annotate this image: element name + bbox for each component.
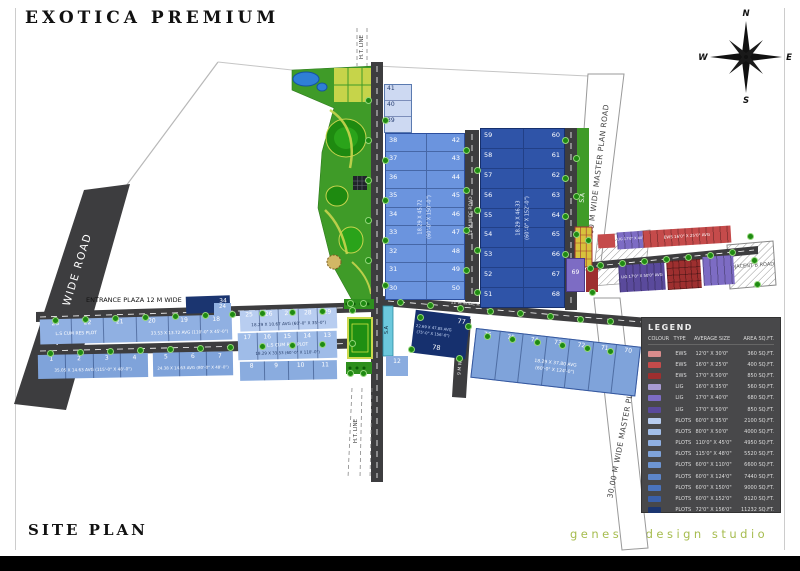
size-metric: 18.29 X 46.33 <box>514 196 523 240</box>
tree-icon <box>573 193 580 200</box>
tree-icon <box>754 281 761 288</box>
plot-grid-row: 5267 <box>481 268 564 288</box>
legend-colour-swatch <box>648 351 661 357</box>
legend-area: 850 SQ.FT. <box>737 373 774 379</box>
plot-number: 44 <box>427 171 464 188</box>
park-lawn <box>326 186 348 206</box>
tree-icon <box>474 247 481 254</box>
legend-row: PLOTS115'0" X 48'0"5520 SQ.FT. <box>648 449 774 460</box>
plot-number: 9 <box>264 361 289 380</box>
legend-type: EWS <box>675 351 695 357</box>
tree-icon <box>456 355 463 362</box>
plot-grid-row: 3644 <box>386 171 464 189</box>
tree-icon <box>289 342 296 349</box>
tree-icon <box>229 311 236 318</box>
tree-icon <box>641 258 648 265</box>
legend-row: EWS17'0" X 50'0"850 SQ.FT. <box>648 370 774 381</box>
plot-grid-row: 5366 <box>481 248 564 268</box>
legend-row: EWS16'0" X 25'0"400 SQ.FT. <box>648 359 774 370</box>
tree-icon <box>365 177 372 184</box>
tree-icon <box>474 207 481 214</box>
legend-type: LIG <box>675 384 695 390</box>
tree-icon <box>142 314 149 321</box>
tree-icon <box>729 249 736 256</box>
plot-number: 32 <box>386 245 427 262</box>
block-77-size-label: 22.69 X 47.85 AVG (75'-0" X 156'-0") <box>414 323 453 339</box>
sa-label-cyan: S.A <box>384 325 390 334</box>
site-boundary <box>375 66 588 76</box>
tree-icon <box>197 345 204 352</box>
tree-icon <box>227 344 234 351</box>
compass-rose: N E S W <box>698 9 792 106</box>
plot-grid-row: 5762 <box>481 169 564 189</box>
legend-colour-swatch <box>648 462 661 468</box>
tree-icon <box>487 308 494 315</box>
legend-average-size: 16'0" X 35'0" <box>695 384 737 390</box>
lig-block-top: LIG 17'0" X 40'0" AVG <box>617 231 644 250</box>
legend-col-size: AVERAGE SIZE <box>694 336 737 342</box>
plot-number: 60 <box>524 129 564 148</box>
tree-icon <box>360 300 367 307</box>
tree-icon <box>587 265 594 272</box>
tree-icon <box>47 350 54 357</box>
legend-average-size: 16'0" X 25'0" <box>695 362 737 368</box>
plot-number: 30 <box>386 282 427 299</box>
plots-row-5-7: 24.38 X 14.63 AVG (80'-0" X 48'-0") 567 <box>153 351 233 376</box>
lig-block-bottom: LIG 17'0" X 50'0" AVG <box>618 263 666 293</box>
legend-rows: EWS12'0" X 30'0"360 SQ.FT.EWS16'0" X 25'… <box>648 348 774 516</box>
legend-colour-swatch <box>648 474 661 480</box>
plot-number: 38 <box>386 134 427 151</box>
entrance-plaza-label: ENTRANCE PLAZA 12 M WIDE <box>86 296 182 304</box>
tree-icon <box>349 340 356 347</box>
park-sandpit <box>327 255 341 269</box>
plots-39-41: 414039 <box>384 84 412 133</box>
legend-title: LEGEND <box>648 323 774 332</box>
tree-icon <box>685 254 692 261</box>
tree-icon <box>319 308 326 315</box>
legend-row: PLOTS60'0" X 152'0"9120 SQ.FT. <box>648 493 774 504</box>
plot-number: 49 <box>427 263 464 280</box>
plot-grid-row: 5960 <box>481 129 564 149</box>
legend-row: LIG17'0" X 50'0"850 SQ.FT. <box>648 404 774 415</box>
plot-number: 8 <box>240 361 265 380</box>
plot-number: 53 <box>481 248 524 267</box>
legend-colour-swatch <box>648 407 661 413</box>
plot-number: 42 <box>427 134 464 151</box>
tree-icon <box>463 187 470 194</box>
legend-average-size: 60'0" X 124'0" <box>695 474 737 480</box>
tree-icon <box>365 137 372 144</box>
tree-icon <box>597 262 604 269</box>
legend-row: PLOTS72'0" X 156'0"11232 SQ.FT. <box>648 505 774 516</box>
ht-line-bottom-label: H.T. LINE <box>353 418 359 443</box>
plot-78: 78 <box>432 343 441 352</box>
plot-number: 51 <box>481 288 524 307</box>
tree-icon <box>137 347 144 354</box>
tree-icon <box>562 137 569 144</box>
tree-icon <box>382 197 389 204</box>
tree-icon <box>607 318 614 325</box>
site-plan-page: EXOTICA PREMIUM SITE PLAN genesis design… <box>0 0 800 571</box>
size-feet: (60'-0" X 150'-0") <box>425 195 434 239</box>
tree-icon <box>382 237 389 244</box>
compass-n: N <box>742 9 749 19</box>
tree-icon <box>465 323 472 330</box>
tree-icon <box>463 147 470 154</box>
tree-icon <box>463 227 470 234</box>
plot-grid-row: 3050 <box>386 282 464 299</box>
ews-block-grid <box>666 259 702 290</box>
plot-grid-row: 3842 <box>386 134 464 152</box>
tree-icon <box>417 314 424 321</box>
legend-row: LIG17'0" X 40'0"680 SQ.FT. <box>648 393 774 404</box>
plot-number: 48 <box>427 245 464 262</box>
plot-number: 57 <box>481 169 524 188</box>
legend-type: LIG <box>675 407 695 413</box>
tree-icon <box>427 302 434 309</box>
legend-average-size: 80'0" X 50'0" <box>695 429 737 435</box>
tree-icon <box>534 339 541 346</box>
legend-colour-swatch <box>648 395 661 401</box>
legend-average-size: 60'0" X 150'0" <box>695 485 737 491</box>
tree-icon <box>365 97 372 104</box>
pond <box>293 72 319 86</box>
plot-number: 25 <box>240 310 260 332</box>
tree-icon <box>484 333 491 340</box>
legend-area: 4950 SQ.FT. <box>737 440 774 446</box>
plot-number: 36 <box>386 171 427 188</box>
tree-icon <box>112 315 119 322</box>
legend-area: 4000 SQ.FT. <box>737 429 774 435</box>
legend-colour-swatch <box>648 418 661 424</box>
plot-grid-row: 5168 <box>481 288 564 307</box>
legend-average-size: 60'0" X 110'0" <box>695 462 737 468</box>
legend-col-colour: COLOUR <box>648 336 674 342</box>
plot-number: 21 <box>104 317 137 343</box>
compass-s: S <box>743 96 749 106</box>
tree-icon <box>259 310 266 317</box>
pond-small <box>317 83 327 91</box>
legend-average-size: 72'0" X 156'0" <box>695 507 737 513</box>
legend-area: 560 SQ.FT. <box>737 384 774 390</box>
tree-icon <box>585 237 592 244</box>
plot-number: 20 <box>136 316 169 342</box>
legend-colour-swatch <box>648 451 661 457</box>
plots-block-51-68: 596058615762566355645465536652675168 18.… <box>480 128 565 308</box>
legend-type: PLOTS <box>675 429 695 435</box>
tree-icon <box>577 316 584 323</box>
legend-type: LIG <box>675 395 695 401</box>
legend-average-size: 17'0" X 50'0" <box>695 373 737 379</box>
tree-icon <box>547 313 554 320</box>
legend-colour-swatch <box>648 373 661 379</box>
tree-icon <box>365 217 372 224</box>
plot-grid-row: 3149 <box>386 263 464 281</box>
plot-number: 59 <box>481 129 524 148</box>
site-boundary <box>126 62 218 186</box>
plot-number: 68 <box>524 288 564 307</box>
plot-number: 37 <box>386 152 427 169</box>
legend-average-size: 17'0" X 50'0" <box>695 407 737 413</box>
plot-number: 50 <box>427 282 464 299</box>
legend-type: PLOTS <box>675 440 695 446</box>
plot-69: 69 <box>566 258 585 292</box>
legend-area: 11232 SQ.FT. <box>737 507 774 513</box>
legend-colour-swatch <box>648 485 661 491</box>
plot-number: 66 <box>524 248 564 267</box>
plot-number: 58 <box>481 149 524 168</box>
tree-icon <box>457 305 464 312</box>
tree-icon <box>347 300 354 307</box>
size-feet: (60'-0" X 152'-0") <box>523 196 532 240</box>
tree-icon <box>509 336 516 343</box>
tree-icon <box>517 310 524 317</box>
size-metric: 18.29 X 45.72 <box>417 195 426 239</box>
tree-icon <box>382 157 389 164</box>
tree-icon <box>347 370 354 377</box>
plot-number: 67 <box>524 268 564 287</box>
legend-area: 850 SQ.FT. <box>737 407 774 413</box>
legend-average-size: 110'0" X 45'0" <box>695 440 737 446</box>
tree-icon <box>259 343 266 350</box>
legend-row: PLOTS80'0" X 50'0"4000 SQ.FT. <box>648 426 774 437</box>
legend-area: 9120 SQ.FT. <box>737 496 774 502</box>
tree-icon <box>474 167 481 174</box>
plot-grid-row: 5861 <box>481 149 564 169</box>
legend-average-size: 60'0" X 35'0" <box>695 418 737 424</box>
legend-type: PLOTS <box>675 462 695 468</box>
plots-row-8-11: 891011 <box>240 360 337 381</box>
tree-icon <box>474 289 481 296</box>
tree-icon <box>202 312 209 319</box>
plots-block-30-50: 384237433644354534463347324831493050 18.… <box>385 133 465 300</box>
legend-average-size: 17'0" X 40'0" <box>695 395 737 401</box>
tree-icon <box>619 260 626 267</box>
lig-block-right <box>702 255 735 286</box>
legend-type: PLOTS <box>675 507 695 513</box>
tree-icon <box>408 346 415 353</box>
plot-number: 40 <box>385 101 411 117</box>
legend-type: PLOTS <box>675 451 695 457</box>
tree-icon <box>562 251 569 258</box>
legend-row: PLOTS60'0" X 150'0"9000 SQ.FT. <box>648 482 774 493</box>
legend-area: 360 SQ.FT. <box>737 351 774 357</box>
legend-col-type: TYPE <box>674 336 694 342</box>
legend-row: PLOTS60'0" X 124'0"7440 SQ.FT. <box>648 471 774 482</box>
tree-icon <box>319 341 326 348</box>
legend-type: PLOTS <box>675 485 695 491</box>
tree-icon <box>365 257 372 264</box>
legend-average-size: 12'0" X 30'0" <box>695 351 737 357</box>
legend-area: 6600 SQ.FT. <box>737 462 774 468</box>
tree-icon <box>382 117 389 124</box>
legend-colour-swatch <box>648 384 661 390</box>
tree-icon <box>751 257 758 264</box>
plot-number: 11 <box>313 360 337 379</box>
tree-icon <box>573 231 580 238</box>
tree-icon <box>82 316 89 323</box>
tree-icon <box>607 348 614 355</box>
legend-type: PLOTS <box>675 418 695 424</box>
tree-icon <box>562 175 569 182</box>
legend-area: 2100 SQ.FT. <box>737 418 774 424</box>
tree-icon <box>107 348 114 355</box>
tree-icon <box>463 267 470 274</box>
ews-plot-small <box>598 234 616 249</box>
plot-number: 62 <box>524 169 564 188</box>
tree-icon <box>289 309 296 316</box>
legend-average-size: 60'0" X 152'0" <box>695 496 737 502</box>
plot-number: 31 <box>386 263 427 280</box>
legend-col-area: AREA SQ.FT. <box>737 336 774 342</box>
sa-green-strip <box>577 128 589 227</box>
tree-icon <box>584 345 591 352</box>
legend-header-row: COLOUR TYPE AVERAGE SIZE AREA SQ.FT. <box>648 336 774 345</box>
legend-row: PLOTS110'0" X 45'0"4950 SQ.FT. <box>648 438 774 449</box>
legend-area: 9000 SQ.FT. <box>737 485 774 491</box>
legend-colour-swatch <box>648 507 661 513</box>
plot-grid-row: 3248 <box>386 245 464 263</box>
tree-icon <box>559 342 566 349</box>
legend-row: LIG16'0" X 35'0"560 SQ.FT. <box>648 382 774 393</box>
legend-row: EWS12'0" X 30'0"360 SQ.FT. <box>648 348 774 359</box>
tree-icon <box>172 313 179 320</box>
legend-area: 7440 SQ.FT. <box>737 474 774 480</box>
tree-icon <box>360 370 367 377</box>
ht-line <box>348 388 352 478</box>
legend-type: PLOTS <box>675 496 695 502</box>
legend-type: PLOTS <box>675 474 695 480</box>
plot-number: 10 <box>289 361 314 380</box>
plot-number: 28 <box>298 308 318 330</box>
compass-w: W <box>698 53 708 63</box>
block-b-size-label: 18.29 X 46.33 (60'-0" X 152'-0") <box>514 196 531 240</box>
legend-colour-swatch <box>648 496 661 502</box>
compass-e: E <box>786 53 792 63</box>
plots-row-18-23: L.S CUM RES PLOT 33.53 X 13.72 AVG (110'… <box>40 314 233 344</box>
legend-row: PLOTS60'0" X 35'0"2100 SQ.FT. <box>648 415 774 426</box>
plot-number: 52 <box>481 268 524 287</box>
legend-type: EWS <box>675 362 695 368</box>
ht-line <box>360 388 362 478</box>
tree-icon <box>663 256 670 263</box>
legend-panel: LEGEND COLOUR TYPE AVERAGE SIZE AREA SQ.… <box>641 317 781 513</box>
tree-icon <box>382 282 389 289</box>
plot-number: 43 <box>427 152 464 169</box>
site-boundary <box>218 62 292 70</box>
tree-icon <box>562 213 569 220</box>
legend-area: 400 SQ.FT. <box>737 362 774 368</box>
block-a-size-label: 18.29 X 45.72 (60'-0" X 150'-0") <box>417 195 434 239</box>
tree-icon <box>167 346 174 353</box>
legend-colour-swatch <box>648 440 661 446</box>
tree-icon <box>747 233 754 240</box>
tree-icon <box>573 155 580 162</box>
tree-icon <box>52 317 59 324</box>
ht-line-top-label: H.T. LINE <box>359 34 365 59</box>
legend-colour-swatch <box>648 362 661 368</box>
legend-average-size: 115'0" X 48'0" <box>695 451 737 457</box>
tree-icon <box>707 252 714 259</box>
plot-number: 61 <box>524 149 564 168</box>
legend-area: 680 SQ.FT. <box>737 395 774 401</box>
legend-colour-swatch <box>648 429 661 435</box>
plot-12: 12 <box>386 356 408 376</box>
plot-grid-row: 3743 <box>386 152 464 170</box>
legend-type: EWS <box>675 373 695 379</box>
tree-icon <box>397 299 404 306</box>
legend-area: 5520 SQ.FT. <box>737 451 774 457</box>
plots-row-1-4: 35.05 X 14.63 AVG (115'-0" X 48'-0") 123… <box>38 353 148 379</box>
plot-number: 41 <box>385 85 411 101</box>
tree-icon <box>589 289 596 296</box>
legend-row: PLOTS60'0" X 110'0"6600 SQ.FT. <box>648 460 774 471</box>
tree-icon <box>77 349 84 356</box>
tree-icon <box>349 307 356 314</box>
